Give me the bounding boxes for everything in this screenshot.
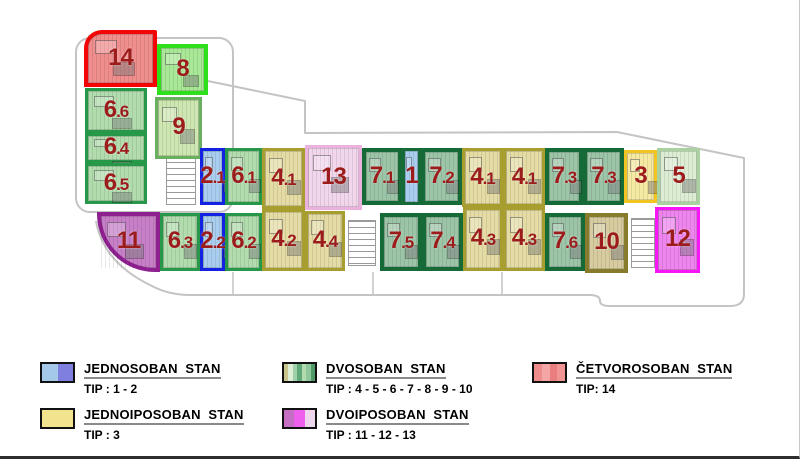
unit-14[interactable]: 14 (84, 30, 157, 87)
unit-4-1-2[interactable]: 4.1 (462, 148, 503, 207)
legend-swatch-jednosoban (40, 362, 75, 383)
unit-6-4[interactable]: 6.4 (85, 133, 147, 163)
unit-6-3[interactable]: 6.3 (160, 213, 200, 271)
unit-label: 12 (665, 227, 690, 251)
unit-4-2[interactable]: 4.2 (262, 209, 305, 271)
unit-7-1[interactable]: 7.1 (362, 148, 402, 205)
legend-title: JEDNOIPOSOBAN STAN (84, 407, 244, 425)
swatch-stripe (534, 364, 542, 381)
floor-plan-page: 14896.66.46.52.16.14.1137.117.24.14.17.3… (0, 0, 800, 459)
unit-label: 4.2 (271, 227, 296, 251)
legend-title: ČETVOROSOBAN STAN (576, 361, 732, 379)
unit-label: 6.1 (231, 164, 256, 188)
unit-4-3-2[interactable]: 4.3 (503, 207, 545, 271)
swatch-stripe (284, 410, 294, 427)
unit-10[interactable]: 10 (585, 213, 628, 273)
unit-4-3[interactable]: 4.3 (463, 207, 503, 271)
unit-label: 4.1 (470, 165, 495, 189)
unit-label: 7.3 (552, 164, 577, 188)
swatch-stripe (557, 364, 565, 381)
unit-6-5[interactable]: 6.5 (85, 163, 147, 204)
swatch-stripe (294, 410, 304, 427)
unit-label: 11 (117, 229, 140, 253)
unit-label: 2.2 (200, 229, 225, 253)
unit-label: 4.4 (313, 228, 338, 252)
unit-label: 7.5 (389, 229, 414, 253)
unit-7-6[interactable]: 7.6 (545, 213, 585, 271)
swatch-stripe (42, 410, 73, 427)
unit-label: 6.4 (104, 135, 129, 159)
stairs-icon (631, 218, 655, 268)
unit-7-2[interactable]: 7.2 (421, 148, 462, 205)
unit-label: 4.1 (271, 166, 296, 190)
unit-1[interactable]: 1 (402, 148, 421, 205)
unit-label: 6.6 (104, 98, 129, 122)
swatch-stripe (311, 364, 315, 381)
unit-label: 6.3 (168, 229, 193, 253)
stairs-icon (348, 220, 376, 266)
legend-title: JEDNOSOBAN STAN (84, 361, 221, 379)
unit-4-4[interactable]: 4.4 (305, 211, 345, 271)
legend-tip: TIP : 3 (84, 428, 244, 442)
unit-9[interactable]: 9 (155, 97, 202, 159)
unit-label: 8 (176, 57, 188, 81)
unit-label: 1 (405, 164, 417, 188)
legend-tip: TIP : 4 - 5 - 6 - 7 - 8 - 9 - 10 (326, 382, 473, 396)
unit-label: 3 (634, 164, 646, 188)
legend-item-cetvorosoban: ČETVOROSOBAN STANTIP: 14 (532, 360, 732, 396)
legend-item-jednoiposoban: JEDNOIPOSOBAN STANTIP : 3 (40, 406, 244, 442)
unit-2-1[interactable]: 2.1 (200, 148, 225, 205)
legend-item-jednosoban: JEDNOSOBAN STANTIP : 1 - 2 (40, 360, 221, 396)
unit-7-4[interactable]: 7.4 (422, 213, 463, 271)
unit-4-1-3[interactable]: 4.1 (503, 148, 545, 207)
unit-label: 14 (108, 46, 133, 70)
unit-label: 4.3 (471, 226, 496, 250)
unit-label: 6.5 (104, 171, 129, 195)
unit-label: 10 (594, 230, 619, 254)
unit-12[interactable]: 12 (655, 207, 700, 273)
legend-tip: TIP: 14 (576, 382, 732, 396)
unit-label: 5 (672, 164, 684, 188)
legend-swatch-dvoiposoban (282, 408, 317, 429)
unit-label: 2.1 (200, 164, 225, 188)
unit-label: 13 (321, 165, 346, 189)
unit-6-6[interactable]: 6.6 (85, 88, 147, 133)
unit-label: 7.6 (553, 229, 578, 253)
legend-title: DVOSOBAN STAN (326, 361, 446, 379)
unit-7-3[interactable]: 7.3 (545, 148, 583, 205)
unit-label: 4.1 (512, 165, 537, 189)
unit-label: 7.4 (430, 229, 455, 253)
swatch-stripe (58, 364, 74, 381)
legend-item-dvoiposoban: DVOIPOSOBAN STANTIP : 11 - 12 - 13 (282, 406, 469, 442)
legend-swatch-cetvorosoban (532, 362, 567, 383)
unit-3[interactable]: 3 (624, 150, 657, 203)
legend-tip: TIP : 11 - 12 - 13 (326, 428, 469, 442)
swatch-stripe (542, 364, 550, 381)
unit-13[interactable]: 13 (305, 145, 362, 210)
unit-label: 7.2 (429, 164, 454, 188)
unit-6-1[interactable]: 6.1 (225, 148, 262, 205)
legend-item-dvosoban: DVOSOBAN STANTIP : 4 - 5 - 6 - 7 - 8 - 9… (282, 360, 473, 396)
unit-label: 4.3 (512, 226, 537, 250)
unit-label: 6.2 (231, 229, 256, 253)
legend-title: DVOIPOSOBAN STAN (326, 407, 469, 425)
unit-2-2[interactable]: 2.2 (200, 213, 225, 271)
unit-label: 7.1 (370, 164, 395, 188)
unit-7-3-2[interactable]: 7.3 (583, 148, 624, 205)
swatch-stripe (305, 410, 315, 427)
unit-4-1[interactable]: 4.1 (262, 148, 305, 209)
unit-label: 9 (172, 115, 184, 139)
swatch-stripe (550, 364, 558, 381)
legend-swatch-jednoiposoban (40, 408, 75, 429)
unit-6-2[interactable]: 6.2 (225, 213, 262, 271)
unit-label: 7.3 (591, 164, 616, 188)
unit-5[interactable]: 5 (657, 148, 700, 205)
swatch-stripe (42, 364, 58, 381)
unit-7-5[interactable]: 7.5 (380, 213, 422, 271)
unit-8[interactable]: 8 (157, 44, 208, 95)
legend-swatch-dvosoban (282, 362, 317, 383)
legend-tip: TIP : 1 - 2 (84, 382, 221, 396)
